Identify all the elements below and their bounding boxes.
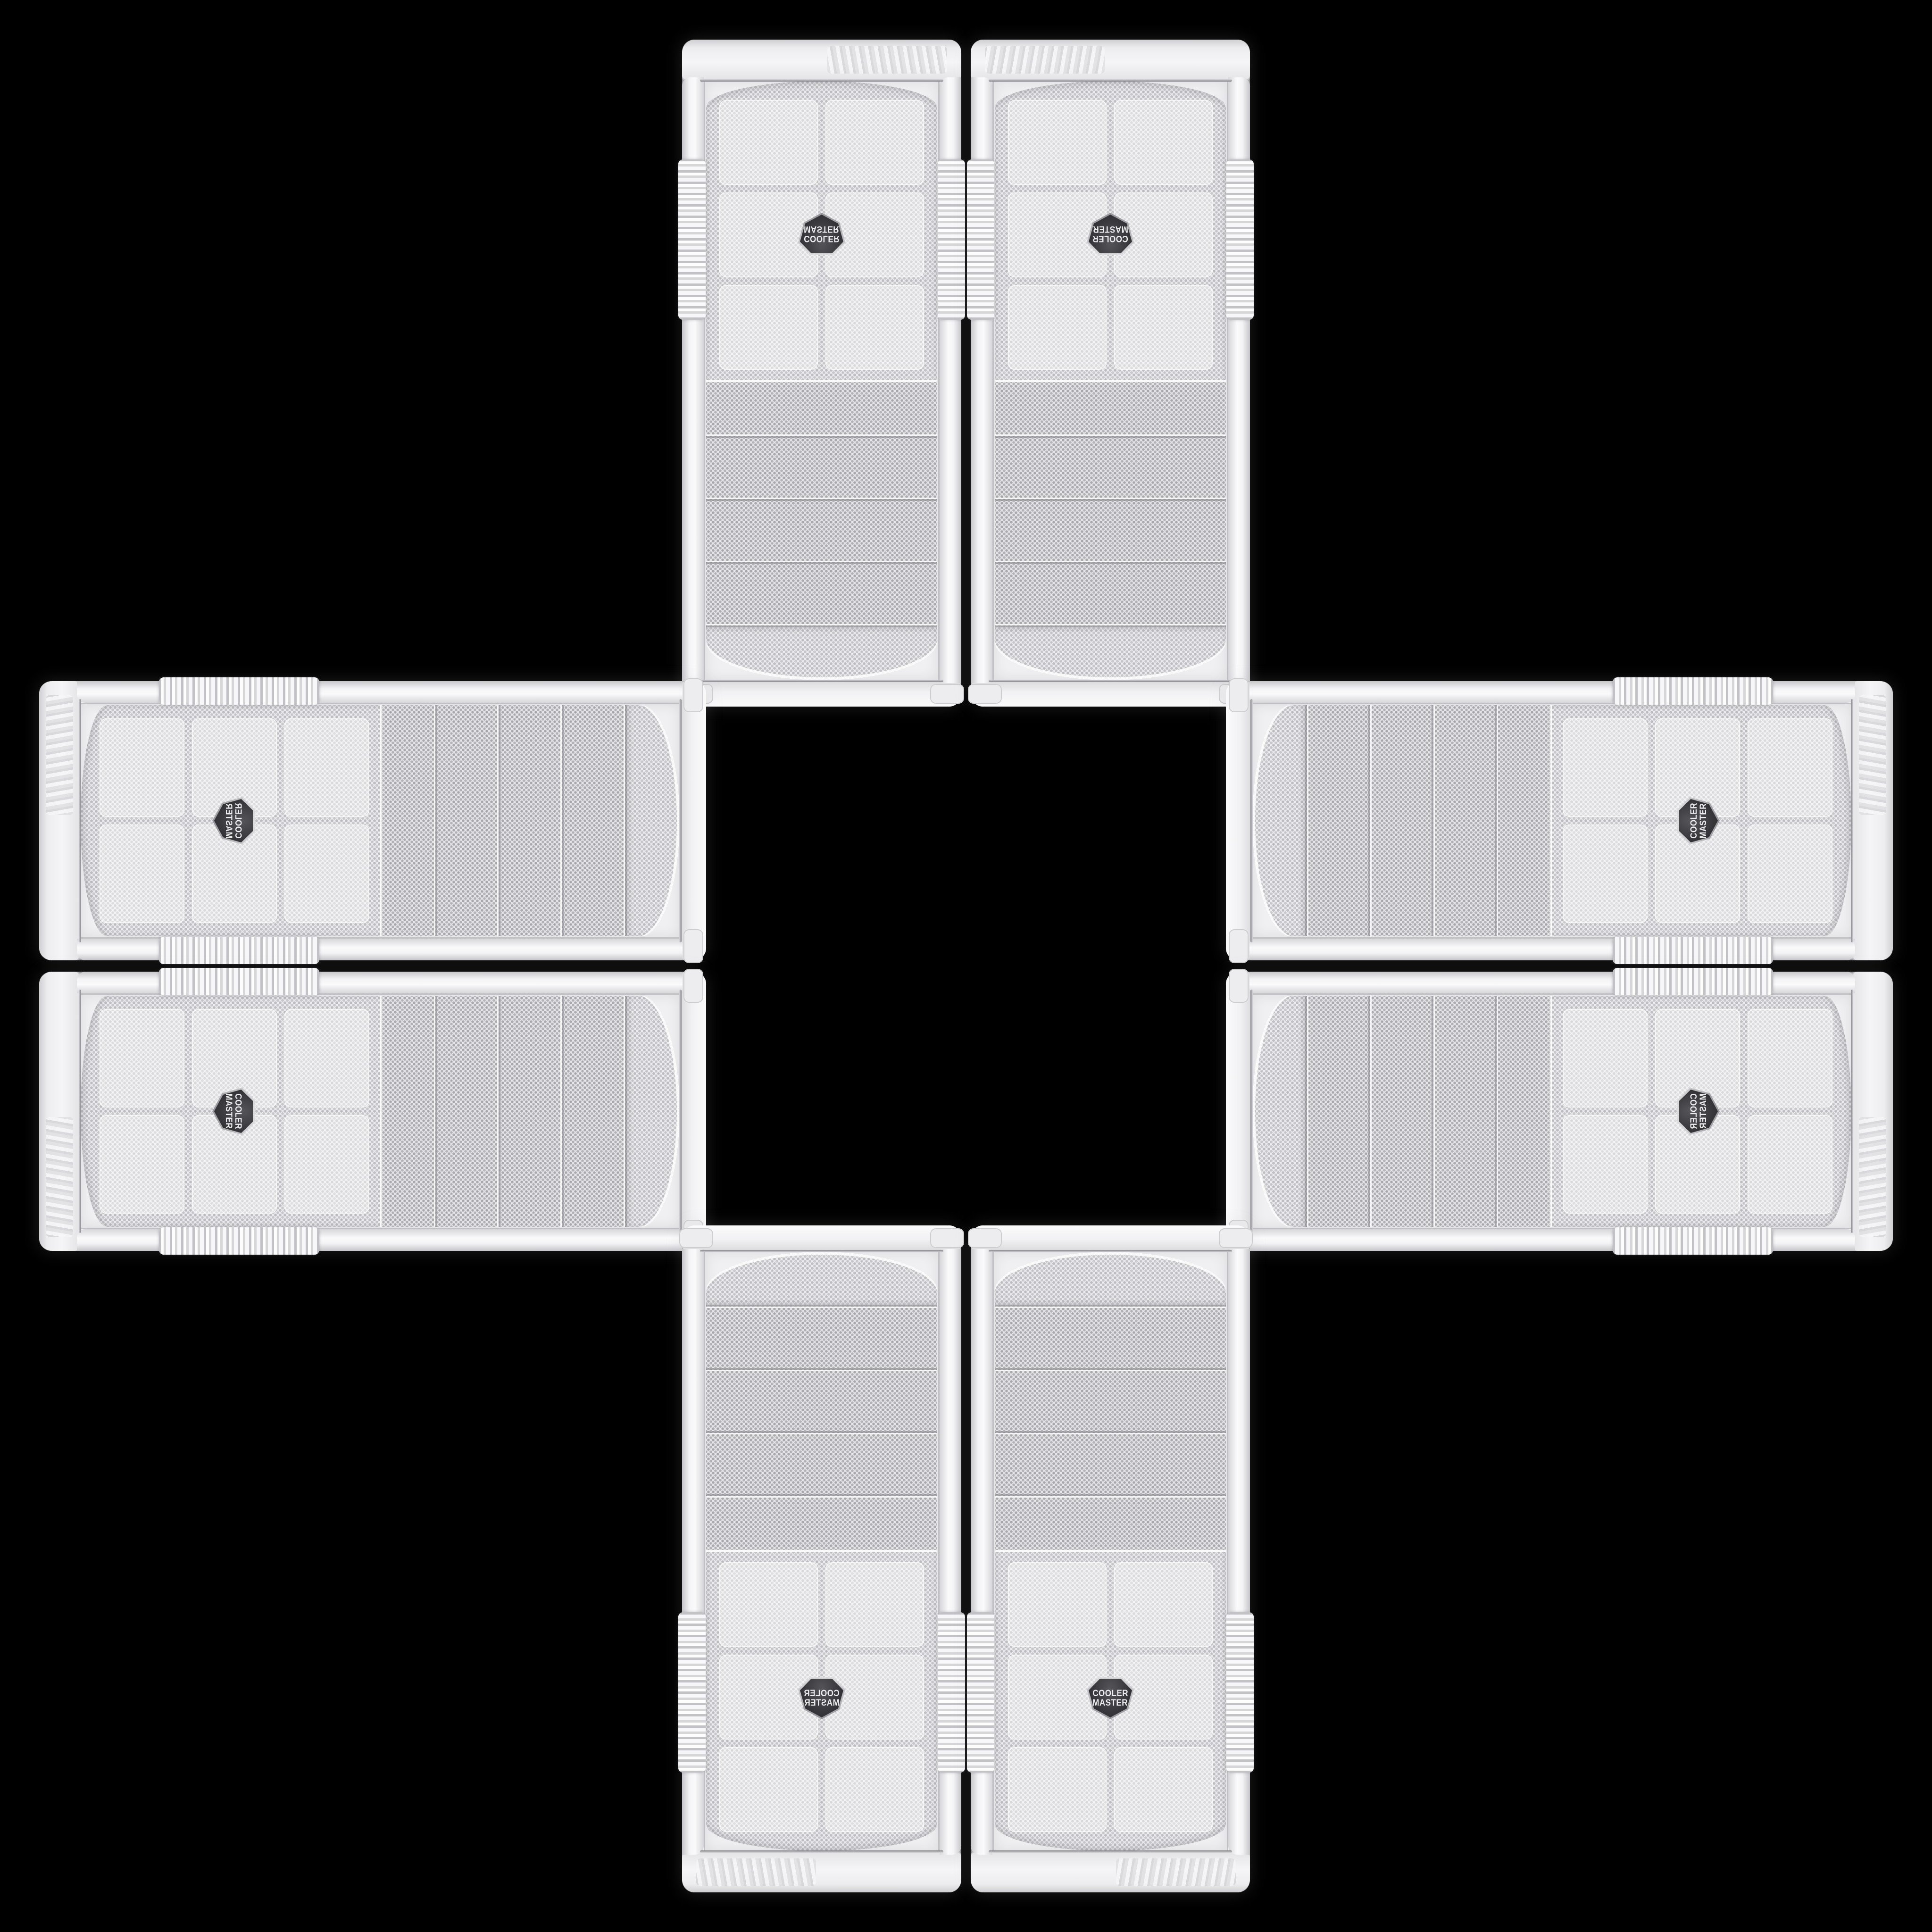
grip-ribs-right [159,677,319,705]
case-top-cap [971,1225,1250,1252]
grip-ribs-left [1226,159,1254,320]
front-mesh-top-curved [1252,996,1305,1227]
drive-bay [1495,705,1558,936]
grip-ribs-left [1613,968,1773,995]
drive-bay-covers [995,382,1226,627]
chrome-trim-top [700,680,943,682]
drive-bay [706,375,937,438]
fan-panel [1748,718,1832,817]
case-top-cap [680,972,706,1251]
front-panel [1252,993,1851,1229]
fan-panel [825,1747,924,1832]
chrome-trim-top [679,990,682,1233]
chrome-trim-bottom [1851,699,1853,942]
top-corner-tab-right [1219,1228,1253,1248]
drive-bay [706,438,937,501]
fan-panel [1008,1562,1107,1647]
drive-bay [564,996,627,1227]
drive-bay [500,996,564,1227]
drive-bay [437,996,500,1227]
fan-panel [100,718,184,817]
chrome-trim-top [989,1250,1232,1252]
grip-ribs-right [1226,1612,1254,1773]
drive-bay [564,705,627,936]
grip-ribs-right [1613,677,1773,705]
drive-bay [706,501,937,564]
fan-panel [825,285,924,370]
fan-panel [1008,285,1107,370]
case-bottom-cap [971,40,1250,81]
chrome-trim-top [679,699,682,942]
chrome-trim-bottom [989,79,1232,82]
top-corner-tab-right [930,684,964,704]
front-mesh-top-curved [627,705,680,936]
badge-text-line1: COOLER [1690,1093,1699,1129]
badge-text-line2: MASTER [1093,225,1128,234]
fan-panel [1563,1009,1648,1108]
fan-panel [719,1562,818,1647]
top-corner-tab-left [683,929,703,963]
drive-bay-covers [706,1305,937,1550]
top-corner-tab-right [1229,678,1249,712]
drive-bay-covers [706,382,937,627]
case-body: COOLER MASTER [682,40,961,707]
fan-panel [719,1747,818,1832]
badge-text-line1: COOLER [234,803,243,839]
front-panel [81,703,680,939]
fan-panel [719,100,818,185]
badge-text-line2: MASTER [1699,1094,1708,1129]
case-top-cap [971,680,1250,707]
chrome-trim-bottom [79,699,81,942]
fan-panel [1114,1562,1213,1647]
grip-ribs-left [938,1612,965,1773]
badge-text-line2: MASTER [225,803,233,839]
case-top-cap [682,1225,961,1252]
drive-bay-covers [382,996,627,1227]
case-bottom-cap [1851,972,1893,1251]
grip-ribs-left [967,1612,994,1773]
drive-bay [1495,996,1558,1227]
top-corner-tab-right [968,684,1002,704]
fan-panel [284,1009,369,1108]
top-corner-tab-right [683,678,703,712]
grip-ribs-right [678,1612,706,1773]
case-top-right: COOLER MASTER [969,38,1252,708]
drive-bay [995,1368,1226,1431]
drive-bay [706,1368,937,1431]
top-corner-tab-left [968,1228,1002,1248]
badge-text-line2: MASTER [1093,1699,1128,1707]
drive-bay-covers [382,705,627,936]
case-body: COOLER MASTER [39,972,706,1251]
badge-text-line2: MASTER [804,1699,840,1707]
chrome-trim-bottom [1851,990,1853,1233]
fan-panel [825,1562,924,1647]
drive-bay [1432,996,1495,1227]
fan-panel [1748,824,1832,923]
front-panel [992,1252,1228,1851]
chrome-trim-top [1250,699,1253,942]
grip-ribs-right [1613,1227,1773,1255]
case-left-bottom: COOLER MASTER [37,970,708,1253]
drive-bay-covers [995,1305,1226,1550]
drive-bay [374,705,437,936]
fan-panel [1748,1115,1832,1214]
fan-panel [284,718,369,817]
front-panel [1252,703,1851,939]
drive-bay [706,1494,937,1557]
drive-bay [1305,705,1368,936]
fan-panel [100,1009,184,1108]
case-top-cap [1226,681,1252,960]
case-bottom-cap [39,972,81,1251]
drive-bay [995,501,1226,564]
front-mesh-top-curved [706,627,937,680]
fan-panel [100,1115,184,1214]
case-right-top: COOLER MASTER [1224,679,1895,962]
front-mesh-top-curved [627,996,680,1227]
drive-bay [706,564,937,627]
drive-bay [1432,705,1495,936]
fan-panel [1114,1747,1213,1832]
chrome-trim-bottom [989,1850,1232,1853]
fan-panel [1748,1009,1832,1108]
drive-bay [374,996,437,1227]
fan-panel [1563,1115,1648,1214]
badge-text-line2: MASTER [1699,803,1708,839]
drive-bay-covers [1305,996,1550,1227]
grip-ribs-right [159,1227,319,1255]
badge-text-line1: COOLER [234,1093,243,1129]
drive-bay [706,1431,937,1494]
case-body: COOLER MASTER [1226,972,1893,1251]
case-body: COOLER MASTER [1226,681,1893,960]
fan-panel [1008,1747,1107,1832]
drive-bay [995,1431,1226,1494]
fan-panel [284,1115,369,1214]
scene-canvas: COOLER MASTER [0,0,1932,1932]
case-right-bottom: COOLER MASTER [1224,970,1895,1253]
drive-bay [995,564,1226,627]
badge-text-line1: COOLER [1092,234,1128,243]
fan-panel [1008,100,1107,185]
front-mesh-top-curved [995,1252,1226,1305]
drive-bay-covers [1305,705,1550,936]
top-corner-tab-left [1229,969,1249,1003]
grip-ribs-left [159,968,319,995]
grip-ribs-right [967,159,994,320]
fan-panel [1114,285,1213,370]
case-body: COOLER MASTER [39,681,706,960]
fan-panel [1114,100,1213,185]
chrome-trim-bottom [700,79,943,82]
drive-bay [437,705,500,936]
drive-bay [995,375,1226,438]
front-mesh-top-curved [995,627,1226,680]
case-top-cap [680,681,706,960]
badge-text-line2: MASTER [804,225,840,234]
grip-ribs-left [159,937,319,964]
case-bottom-left: COOLER MASTER [680,1224,963,1894]
grip-ribs-right [938,159,965,320]
front-panel [992,81,1228,680]
chrome-trim-top [1250,990,1253,1233]
case-bottom-right: COOLER MASTER [969,1224,1252,1894]
fan-panel [100,824,184,923]
badge-text-line1: COOLER [804,1689,840,1698]
drive-bay [995,1305,1226,1368]
top-corner-tab-right [679,1228,713,1248]
fan-panel [719,285,818,370]
front-panel [81,993,680,1229]
chrome-trim-top [700,1250,943,1252]
case-top-cap [682,680,961,707]
front-mesh-top-curved [1252,705,1305,936]
front-mesh-top-curved [706,1252,937,1305]
fan-panel [1563,824,1648,923]
front-panel [704,81,940,680]
case-top-cap [1226,972,1252,1251]
drive-bay [995,1494,1226,1557]
case-bottom-cap [971,1851,1250,1892]
badge-text-line1: COOLER [1092,1689,1128,1698]
chrome-trim-top [989,680,1232,682]
drive-bay [500,705,564,936]
top-corner-tab-left [1229,929,1249,963]
chrome-trim-bottom [700,1850,943,1853]
case-left-top: COOLER MASTER [37,679,708,962]
badge-text-line1: COOLER [804,234,840,243]
drive-bay [1368,705,1432,936]
case-top-left: COOLER MASTER [680,38,963,708]
drive-bay [1368,996,1432,1227]
front-panel [704,1252,940,1851]
drive-bay [706,1305,937,1368]
case-bottom-cap [39,681,81,960]
case-bottom-cap [682,1851,961,1892]
fan-panel [1563,718,1648,817]
badge-text-line2: MASTER [225,1094,233,1129]
grip-ribs-left [678,159,706,320]
case-body: COOLER MASTER [682,1225,961,1892]
case-bottom-cap [682,40,961,81]
case-body: COOLER MASTER [971,40,1250,707]
drive-bay [1305,996,1368,1227]
drive-bay [995,438,1226,501]
top-corner-tab-left [930,1228,964,1248]
case-bottom-cap [1851,681,1893,960]
grip-ribs-left [1613,937,1773,964]
fan-panel [284,824,369,923]
fan-panel [825,100,924,185]
case-body: COOLER MASTER [971,1225,1250,1892]
top-corner-tab-left [683,969,703,1003]
chrome-trim-bottom [79,990,81,1233]
badge-text-line1: COOLER [1690,803,1699,839]
